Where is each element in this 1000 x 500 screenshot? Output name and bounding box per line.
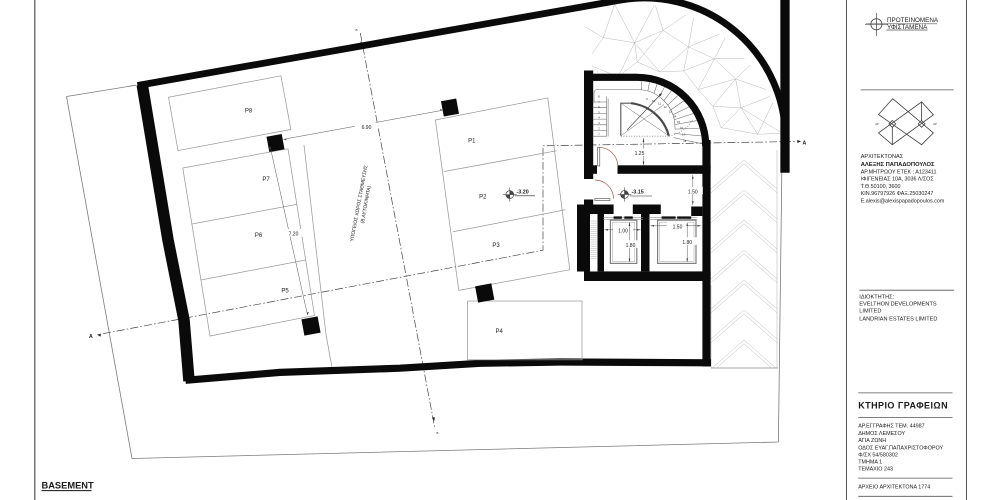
- svg-text:1.80: 1.80: [626, 243, 636, 249]
- svg-text:1.25: 1.25: [635, 151, 645, 157]
- svg-text:ΚΤΗΡΙΟ ΓΡΑΦΕΙΩΝ: ΚΤΗΡΙΟ ΓΡΑΦΕΙΩΝ: [858, 401, 948, 411]
- svg-text:P2: P2: [479, 195, 487, 201]
- svg-text:ΑΡΧΙΤΕΚΤΟΝΑΣ: ΑΡΧΙΤΕΚΤΟΝΑΣ: [861, 154, 904, 160]
- svg-text:Φ/ΣΧ 54/580302: Φ/ΣΧ 54/580302: [858, 453, 898, 459]
- svg-text:P1: P1: [468, 139, 476, 145]
- svg-text:BASEMENT: BASEMENT: [42, 481, 94, 491]
- svg-text:ΑΛΕΞΗΣ ΠΑΠΑΔΟΠΟΥΛΟΣ: ΑΛΕΞΗΣ ΠΑΠΑΔΟΠΟΥΛΟΣ: [861, 162, 935, 168]
- svg-text:P3: P3: [492, 243, 500, 249]
- svg-text:P7: P7: [262, 177, 270, 183]
- svg-text:ΚΙΝ.96797926 ΦΑΞ.25030247: ΚΙΝ.96797926 ΦΑΞ.25030247: [861, 191, 934, 197]
- svg-text:-3.15: -3.15: [632, 189, 644, 195]
- svg-text:E.alexis@alexispapadopoulos.co: E.alexis@alexispapadopoulos.com: [861, 198, 945, 204]
- svg-text:6.90: 6.90: [362, 125, 372, 131]
- svg-text:EVELTHON DEVELOPMENTS: EVELTHON DEVELOPMENTS: [859, 302, 937, 308]
- svg-text:ΤΕΜΑΧΙΟ 243: ΤΕΜΑΧΙΟ 243: [858, 466, 893, 472]
- svg-text:ΙΦΙΓΕΝΕΙΑΣ 10Α, 3036 Λ/ΣΟΣ: ΙΦΙΓΕΝΕΙΑΣ 10Α, 3036 Λ/ΣΟΣ: [861, 177, 935, 183]
- svg-text:ΟΔΟΣ ΕΥΑΓ.ΠΑΠΑΧΡΙΣΤΟΦΟΡΟΥ: ΟΔΟΣ ΕΥΑΓ.ΠΑΠΑΧΡΙΣΤΟΦΟΡΟΥ: [858, 445, 943, 451]
- svg-text:ΑΡΧΕΙΟ ΑΡΧΙΤΕΚΤΟΝΑ 1774: ΑΡΧΕΙΟ ΑΡΧΙΤΕΚΤΟΝΑ 1774: [858, 484, 930, 490]
- svg-text:ΑΡ.ΜΗΤΡΩΟΥ ΕΤΕΚ : Α123411: ΑΡ.ΜΗΤΡΩΟΥ ΕΤΕΚ : Α123411: [861, 170, 937, 176]
- svg-text:LIMITED: LIMITED: [859, 309, 881, 315]
- svg-text:ΔΗΜΟΣ ΛΕΜΕΣΟΥ: ΔΗΜΟΣ ΛΕΜΕΣΟΥ: [858, 431, 905, 437]
- svg-text:1.50: 1.50: [688, 190, 698, 196]
- svg-text:LANDRIAN ESTATES LIMITED: LANDRIAN ESTATES LIMITED: [859, 316, 937, 322]
- svg-text:-3.20: -3.20: [517, 189, 529, 195]
- svg-text:A: A: [89, 334, 93, 340]
- svg-text:ΠΡΟΤΕΙΝΟΜΕΝΑ: ΠΡΟΤΕΙΝΟΜΕΝΑ: [887, 17, 939, 24]
- svg-text:ΤΜΗΜΑ 1: ΤΜΗΜΑ 1: [858, 460, 882, 466]
- svg-text:P5: P5: [281, 289, 289, 295]
- svg-text:7.20: 7.20: [289, 232, 299, 238]
- svg-text:B: B: [356, 28, 358, 32]
- svg-text:ΑΡ: ΑΡ: [875, 122, 879, 126]
- svg-text:P6: P6: [255, 233, 263, 239]
- svg-text:Τ.Θ.50100, 3600: Τ.Θ.50100, 3600: [861, 184, 901, 190]
- svg-text:ΑΓΙΑ ΖΩΝΗ: ΑΓΙΑ ΖΩΝΗ: [858, 438, 886, 444]
- svg-text:ΙΔΙΟΚΤΗΤΗΣ:: ΙΔΙΟΚΤΗΤΗΣ:: [859, 294, 894, 300]
- svg-text:ΑΡ.ΕΓΓΡΑΦΗΣ ΤΕΜ. 44987: ΑΡ.ΕΓΓΡΑΦΗΣ ΤΕΜ. 44987: [858, 424, 924, 430]
- svg-text:1.00: 1.00: [618, 229, 628, 235]
- svg-text:ΑΡ: ΑΡ: [933, 122, 937, 126]
- svg-text:A: A: [803, 141, 807, 147]
- svg-text:1.50: 1.50: [673, 225, 683, 231]
- svg-text:B: B: [437, 431, 439, 435]
- svg-text:1.80: 1.80: [682, 240, 692, 246]
- svg-text:P4: P4: [496, 329, 504, 335]
- svg-text:P8: P8: [245, 109, 253, 115]
